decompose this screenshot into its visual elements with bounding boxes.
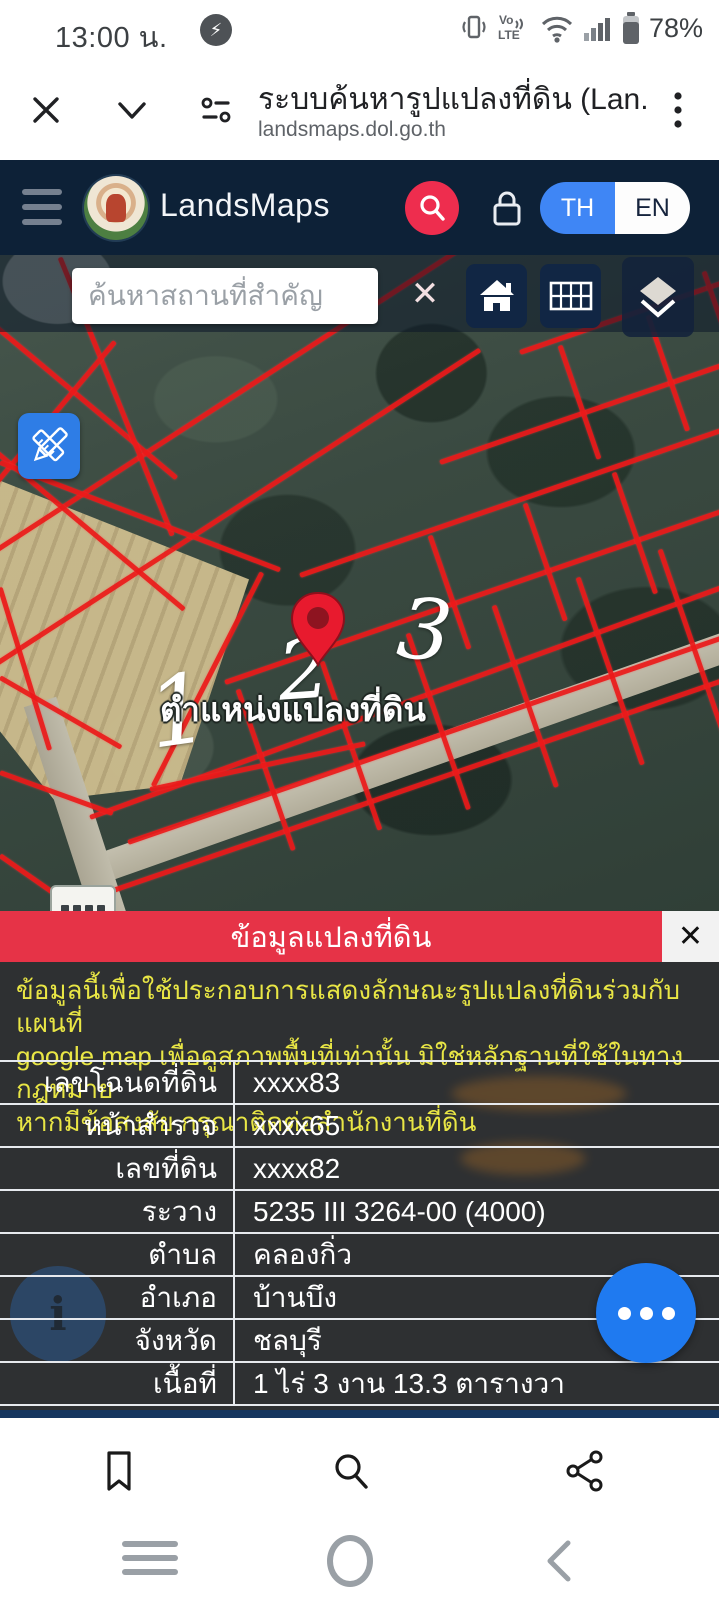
location-pin-icon — [288, 591, 348, 669]
phone-screen: 13:00 น. ⚡ Vo LTE — [0, 0, 719, 1600]
more-actions-fab[interactable] — [596, 1263, 696, 1363]
language-th[interactable]: TH — [540, 182, 615, 234]
browser-menu-icon[interactable] — [652, 84, 704, 136]
place-search-input[interactable] — [72, 268, 378, 324]
layers-button[interactable] — [622, 257, 694, 337]
signal-icon — [583, 11, 613, 45]
table-row: เลขที่ดินxxxx82 — [0, 1146, 719, 1189]
back-icon[interactable] — [540, 1535, 576, 1592]
collapse-chevron-icon[interactable] — [106, 84, 158, 136]
department-of-lands-logo — [84, 176, 148, 240]
table-row: เนื้อที่1 ไร่ 3 งาน 13.3 ตารางวา — [0, 1361, 719, 1404]
table-row: ระวาง5235 III 3264-00 (4000) — [0, 1189, 719, 1232]
svg-text:Vo: Vo — [499, 13, 513, 27]
messenger-notification-icon: ⚡ — [200, 14, 232, 46]
android-navigation-bar — [0, 1523, 719, 1600]
header-search-button[interactable] — [405, 181, 459, 235]
panel-title: ข้อมูลแปลงที่ดิน — [0, 911, 662, 962]
battery-percent: 78% — [649, 13, 703, 44]
parcel-number-3: 3 — [393, 578, 456, 681]
page-controls-icon[interactable] — [190, 84, 242, 136]
clock: 13:00 น. — [55, 14, 168, 60]
home-extent-button[interactable] — [466, 264, 527, 328]
road-number-sign — [50, 885, 116, 911]
lock-icon[interactable] — [487, 186, 527, 230]
page-url: landsmaps.dol.go.th — [258, 118, 446, 142]
battery-icon — [621, 10, 641, 46]
wifi-icon — [539, 11, 575, 45]
measure-draw-button[interactable] — [18, 413, 80, 479]
svg-text:LTE: LTE — [498, 28, 520, 42]
satellite-map[interactable]: 1 2 3 ตำแหน่งแปลงที่ดิน ✕ — [0, 255, 719, 911]
table-row: หน้าสำรวจxxxx65 — [0, 1103, 719, 1146]
language-toggle[interactable]: TH EN — [540, 182, 690, 234]
table-row: เลขโฉนดที่ดินxxxx83 — [0, 1060, 719, 1103]
close-tab-icon[interactable] — [20, 84, 72, 136]
status-bar: 13:00 น. ⚡ Vo LTE — [0, 0, 719, 60]
share-icon[interactable] — [560, 1446, 610, 1496]
page-title: ระบบค้นหารูปแปลงที่ดิน (Lan... — [258, 76, 648, 123]
menu-icon[interactable] — [22, 189, 64, 227]
search-icon[interactable] — [326, 1446, 376, 1496]
volte-icon: Vo LTE — [497, 11, 531, 45]
table-row: ตำบลคลองกิ่ว — [0, 1232, 719, 1275]
panel-header: ข้อมูลแปลงที่ดิน ✕ — [0, 911, 719, 962]
clear-search-icon[interactable]: ✕ — [402, 269, 448, 319]
browser-bottom-toolbar — [0, 1418, 719, 1523]
parcel-table: เลขโฉนดที่ดินxxxx83 หน้าสำรวจxxxx65 เลขท… — [0, 1060, 719, 1406]
bookmark-icon[interactable] — [94, 1446, 144, 1496]
app-name: LandsMaps — [160, 187, 330, 224]
grid-layer-button[interactable] — [540, 264, 601, 328]
pin-label: ตำแหน่งแปลงที่ดิน — [160, 683, 426, 736]
panel-close-button[interactable]: ✕ — [662, 911, 719, 962]
home-icon[interactable] — [327, 1535, 373, 1587]
disclaimer-line: ข้อมูลนี้เพื่อใช้ประกอบการแสดงลักษณะรูปแ… — [16, 974, 703, 1040]
vibrate-icon — [459, 11, 489, 45]
browser-toolbar: ระบบค้นหารูปแปลงที่ดิน (Lan... landsmaps… — [0, 60, 719, 160]
recents-icon[interactable] — [122, 1541, 178, 1583]
language-en[interactable]: EN — [615, 182, 690, 234]
